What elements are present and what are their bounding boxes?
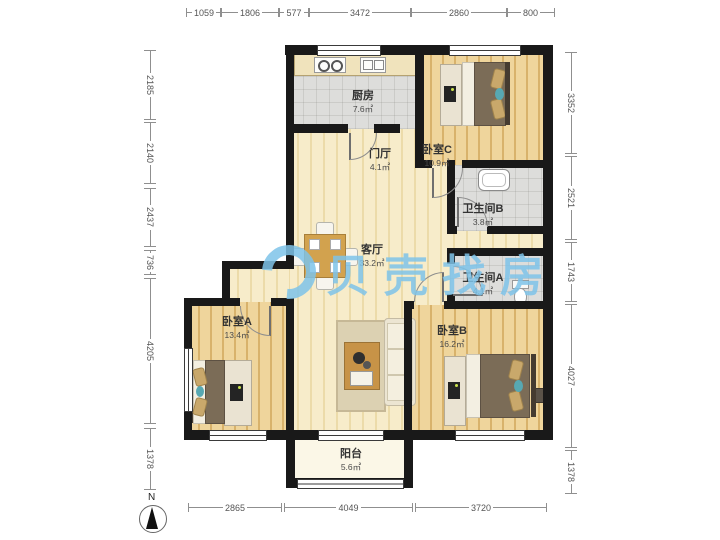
bathtub-icon [478, 169, 510, 191]
dim-top-2860: 2860 [410, 8, 508, 17]
dim-top-577: 577 [278, 8, 310, 17]
window-kitchen [317, 45, 381, 56]
wall [286, 124, 348, 133]
bed-bedroomA-icon [188, 360, 224, 424]
dim-left-1378: 1378 [144, 428, 156, 490]
dim-bottom-4049: 4049 [284, 503, 413, 512]
dim-top-1806: 1806 [220, 8, 280, 17]
sink-icon [360, 57, 386, 73]
window-bedroomC [449, 45, 521, 56]
wall [374, 124, 400, 133]
dim-top-800: 800 [506, 8, 555, 17]
wall [271, 298, 294, 306]
wall [462, 160, 553, 168]
dim-right-4027: 4027 [565, 304, 577, 448]
label-kitchen: 厨房7.6㎡ [333, 90, 393, 114]
floorplan-canvas: 1059 1806 577 3472 2860 800 2185 2140 24… [0, 0, 720, 540]
dim-top-3472: 3472 [308, 8, 412, 17]
kitchen-counter [294, 54, 420, 76]
wall [184, 298, 240, 306]
dim-left-2437: 2437 [144, 188, 156, 247]
wall [404, 301, 412, 438]
wall [444, 301, 553, 309]
wall [286, 298, 294, 438]
balcony-sliding-door [318, 430, 384, 441]
wall [447, 248, 553, 256]
label-bedroomC: 卧室C10.9㎡ [407, 144, 467, 168]
label-living: 客厅33.2㎡ [342, 244, 402, 268]
coffee-table-icon [344, 342, 380, 390]
window-balcony [297, 479, 404, 489]
window-bedroomA-south [209, 430, 267, 441]
dim-bottom-2865: 2865 [188, 503, 282, 512]
wall [543, 45, 553, 440]
window-bedroomA-west [184, 348, 193, 412]
compass: N [136, 492, 170, 536]
dim-right-2521: 2521 [565, 156, 577, 240]
bed-bedroomB-icon [466, 354, 536, 418]
dim-right-1378: 1378 [565, 450, 577, 494]
label-bathB: 卫生间B3.8㎡ [448, 203, 518, 227]
tv-bedroomA-icon [230, 384, 243, 401]
dim-bottom-3720: 3720 [415, 503, 547, 512]
stove-icon [314, 57, 346, 73]
window-bedroomB-south [455, 430, 525, 441]
dim-top-1059: 1059 [186, 8, 222, 17]
label-bedroomB: 卧室B16.2㎡ [422, 325, 482, 349]
compass-north-label: N [148, 492, 155, 503]
compass-needle-icon [146, 507, 158, 529]
label-balcony: 阳台5.6㎡ [321, 448, 381, 472]
wall [447, 248, 455, 264]
wall [222, 261, 294, 269]
label-bedroomA: 卧室A13.4㎡ [207, 316, 267, 340]
label-bathA: 卫生间A4.1㎡ [448, 272, 518, 296]
dim-right-1743: 1743 [565, 242, 577, 302]
dim-right-3352: 3352 [565, 52, 577, 154]
dim-left-736: 736 [144, 250, 156, 275]
dim-left-2185: 2185 [144, 50, 156, 120]
bed-bedroomC-icon [462, 62, 510, 126]
dim-left-4205: 4205 [144, 278, 156, 424]
tv-bedroomB-icon [448, 382, 460, 399]
wall [286, 45, 294, 269]
dim-left-2140: 2140 [144, 122, 156, 184]
tv-bedroomC-icon [444, 86, 456, 102]
label-hall: 门厅4.1㎡ [350, 148, 410, 172]
